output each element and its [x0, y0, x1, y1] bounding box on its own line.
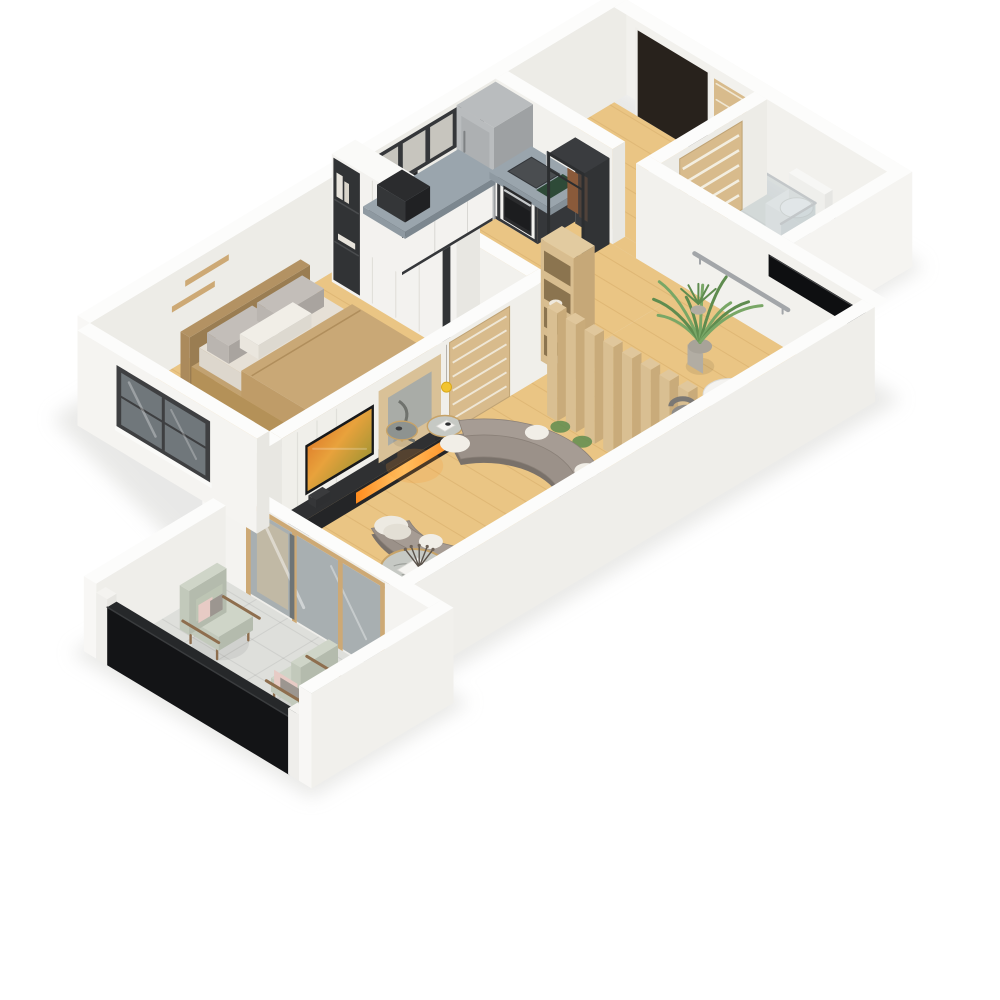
floorplan-render: [0, 0, 1000, 1000]
floorplan-stage: [0, 0, 1000, 1000]
